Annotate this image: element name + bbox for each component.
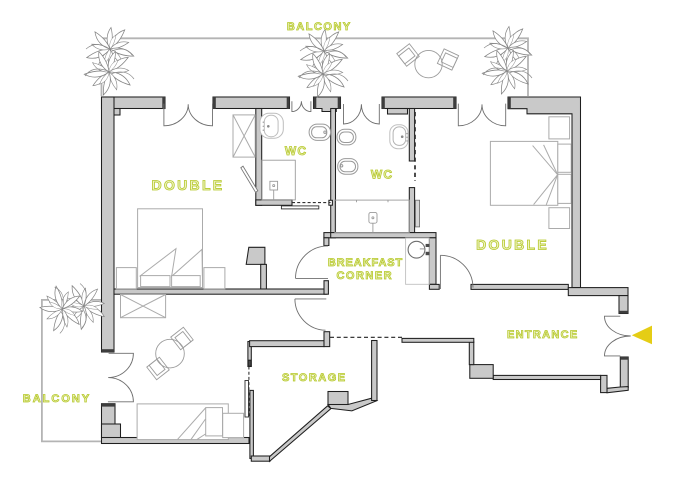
svg-text:WC: WC	[371, 168, 393, 182]
svg-text:BALCONY: BALCONY	[287, 21, 352, 33]
svg-text:ENTRANCE: ENTRANCE	[507, 329, 579, 341]
svg-text:WC: WC	[285, 144, 307, 158]
svg-text:BALCONY: BALCONY	[23, 393, 91, 405]
svg-text:CORNER: CORNER	[336, 270, 393, 282]
svg-text:DOUBLE: DOUBLE	[152, 177, 225, 193]
svg-text:DOUBLE: DOUBLE	[476, 237, 549, 253]
svg-text:BREAKFAST: BREAKFAST	[328, 257, 403, 269]
svg-text:STORAGE: STORAGE	[282, 372, 347, 384]
